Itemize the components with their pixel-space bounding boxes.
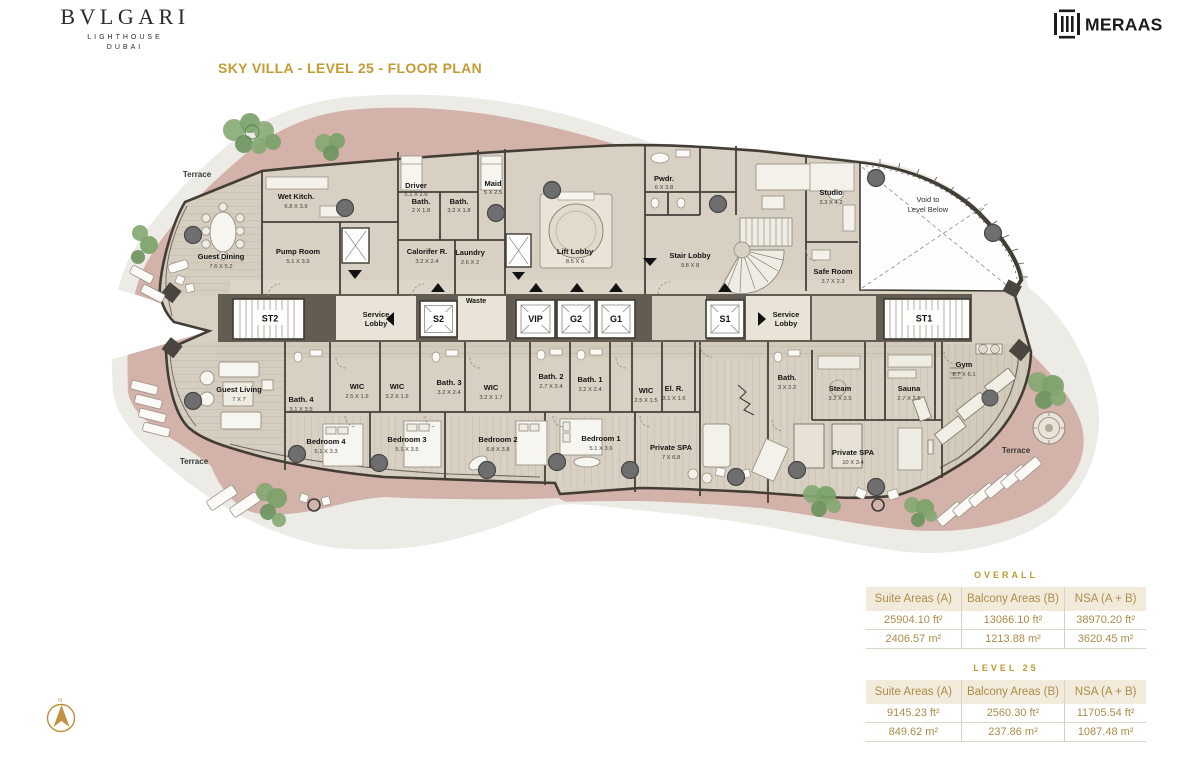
svg-text:El. R.: El. R. xyxy=(665,384,684,393)
svg-text:3.3 X 4.2: 3.3 X 4.2 xyxy=(819,200,842,206)
svg-text:6 X 3.8: 6 X 3.8 xyxy=(655,185,673,191)
svg-text:Private SPA: Private SPA xyxy=(832,448,875,457)
svg-text:7.6 X 5.2: 7.6 X 5.2 xyxy=(209,264,232,270)
svg-text:5.1 X 3.5: 5.1 X 3.5 xyxy=(395,447,418,453)
svg-text:Bath. 3: Bath. 3 xyxy=(436,378,461,387)
svg-text:5.1 X 3.6: 5.1 X 3.6 xyxy=(589,446,612,452)
svg-text:Gym: Gym xyxy=(956,360,973,369)
svg-text:Bath.: Bath. xyxy=(412,197,431,206)
svg-text:Laundry: Laundry xyxy=(455,248,485,257)
svg-text:Safe Room: Safe Room xyxy=(813,267,853,276)
svg-text:3.2 X 1.7: 3.2 X 1.7 xyxy=(479,395,502,401)
svg-text:Lift Lobby: Lift Lobby xyxy=(557,247,594,256)
svg-text:WIC: WIC xyxy=(484,383,499,392)
svg-text:Void to: Void to xyxy=(917,195,940,204)
svg-text:N: N xyxy=(58,698,62,704)
svg-text:Guest Dining: Guest Dining xyxy=(198,252,245,261)
svg-text:2.5 X 1.5: 2.5 X 1.5 xyxy=(634,398,657,404)
svg-text:Terrace: Terrace xyxy=(1002,446,1031,455)
svg-text:Terrace: Terrace xyxy=(183,170,212,179)
svg-text:3.2 X 2.4: 3.2 X 2.4 xyxy=(415,259,439,265)
svg-text:Waste: Waste xyxy=(466,298,486,305)
svg-text:WIC: WIC xyxy=(390,382,405,391)
svg-text:3.1 X 1.6: 3.1 X 1.6 xyxy=(662,396,685,402)
svg-text:G1: G1 xyxy=(610,314,622,324)
svg-text:2.7 X 2.4: 2.7 X 2.4 xyxy=(539,384,563,390)
svg-text:S1: S1 xyxy=(719,314,730,324)
svg-text:Bedroom 3: Bedroom 3 xyxy=(387,435,426,444)
svg-text:ST2: ST2 xyxy=(262,314,279,324)
svg-text:2.6 X 2: 2.6 X 2 xyxy=(461,260,479,266)
svg-text:Studio: Studio xyxy=(819,188,843,197)
svg-text:Sauna: Sauna xyxy=(898,384,921,393)
svg-text:2 X 1.8: 2 X 1.8 xyxy=(412,208,430,214)
svg-text:2.7 X 2.5: 2.7 X 2.5 xyxy=(897,396,920,402)
svg-text:Steam: Steam xyxy=(829,384,852,393)
svg-text:6.8 X 3.9: 6.8 X 3.9 xyxy=(284,204,307,210)
svg-text:Calorifer R.: Calorifer R. xyxy=(407,247,447,256)
svg-text:Bedroom 2: Bedroom 2 xyxy=(478,435,517,444)
svg-text:9.8 X 8: 9.8 X 8 xyxy=(681,263,699,269)
svg-text:3.2 X 1.5: 3.2 X 1.5 xyxy=(385,394,408,400)
svg-text:Level Below: Level Below xyxy=(908,205,949,214)
svg-text:5.1 X 3.9: 5.1 X 3.9 xyxy=(286,259,309,265)
svg-text:Terrace: Terrace xyxy=(180,457,209,466)
svg-text:8.5 X 6: 8.5 X 6 xyxy=(566,259,584,265)
svg-text:8.7 X 6.1: 8.7 X 6.1 xyxy=(952,372,975,378)
svg-text:Bath. 4: Bath. 4 xyxy=(288,395,314,404)
svg-text:2.5 X 1.5: 2.5 X 1.5 xyxy=(345,394,368,400)
svg-text:3 X 2.2: 3 X 2.2 xyxy=(778,385,796,391)
svg-text:3.1 X 3.5: 3.1 X 3.5 xyxy=(289,407,312,413)
svg-text:3.2 X 2.4: 3.2 X 2.4 xyxy=(437,390,461,396)
svg-text:Bath. 1: Bath. 1 xyxy=(577,375,602,384)
svg-text:Bath.: Bath. xyxy=(778,373,797,382)
svg-text:WIC: WIC xyxy=(350,382,365,391)
svg-text:3.2 X 2.5: 3.2 X 2.5 xyxy=(828,396,851,402)
svg-text:Bath. 2: Bath. 2 xyxy=(538,372,563,381)
svg-text:3.2 X 2.4: 3.2 X 2.4 xyxy=(578,387,602,393)
svg-text:6.8 X 3.8: 6.8 X 3.8 xyxy=(486,447,509,453)
svg-text:Bath.: Bath. xyxy=(450,197,469,206)
svg-text:3.7 X 2.3: 3.7 X 2.3 xyxy=(821,279,844,285)
svg-text:Service: Service xyxy=(363,310,390,319)
svg-text:Stair Lobby: Stair Lobby xyxy=(669,251,711,260)
svg-text:Bedroom 1: Bedroom 1 xyxy=(581,434,620,443)
svg-text:Wet Kitch.: Wet Kitch. xyxy=(278,192,315,201)
svg-text:5 X 2.5: 5 X 2.5 xyxy=(484,190,502,196)
svg-text:VIP: VIP xyxy=(528,314,543,324)
svg-text:Maid: Maid xyxy=(484,179,502,188)
svg-text:7 X 7: 7 X 7 xyxy=(232,397,246,403)
svg-text:10 X 3.4: 10 X 3.4 xyxy=(842,460,864,466)
svg-text:S2: S2 xyxy=(433,314,444,324)
svg-text:Lobby: Lobby xyxy=(775,319,798,328)
svg-text:Pwdr.: Pwdr. xyxy=(654,174,674,183)
svg-text:3.2 X 1.8: 3.2 X 1.8 xyxy=(447,208,470,214)
svg-text:ST1: ST1 xyxy=(916,314,933,324)
svg-text:Bedroom 4: Bedroom 4 xyxy=(306,437,346,446)
svg-text:Guest Living: Guest Living xyxy=(216,385,262,394)
svg-text:Driver: Driver xyxy=(405,181,427,190)
svg-text:5.1 X 3.3: 5.1 X 3.3 xyxy=(314,449,337,455)
svg-text:Pump Room: Pump Room xyxy=(276,247,320,256)
svg-text:G2: G2 xyxy=(570,314,582,324)
svg-text:Private SPA: Private SPA xyxy=(650,443,693,452)
svg-text:Lobby: Lobby xyxy=(365,319,388,328)
svg-text:WIC: WIC xyxy=(639,386,654,395)
svg-text:Service: Service xyxy=(773,310,800,319)
svg-text:7 X 6.8: 7 X 6.8 xyxy=(662,455,680,461)
